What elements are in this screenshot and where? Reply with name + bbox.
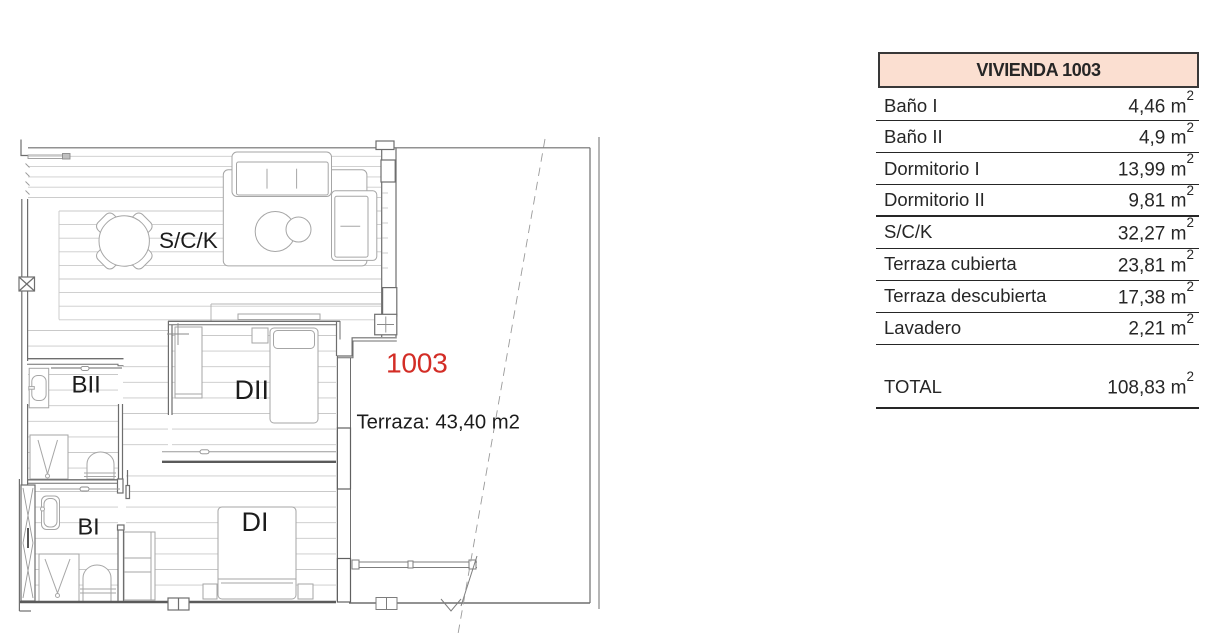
svg-text:Terraza: 43,40 m2: Terraza: 43,40 m2 — [357, 412, 520, 434]
svg-text:BI: BI — [78, 514, 100, 540]
svg-text:DI: DI — [242, 507, 269, 537]
svg-text:1003: 1003 — [386, 347, 448, 379]
svg-text:S/C/K: S/C/K — [159, 228, 218, 253]
svg-text:DII: DII — [235, 375, 270, 405]
svg-text:BII: BII — [72, 372, 101, 399]
